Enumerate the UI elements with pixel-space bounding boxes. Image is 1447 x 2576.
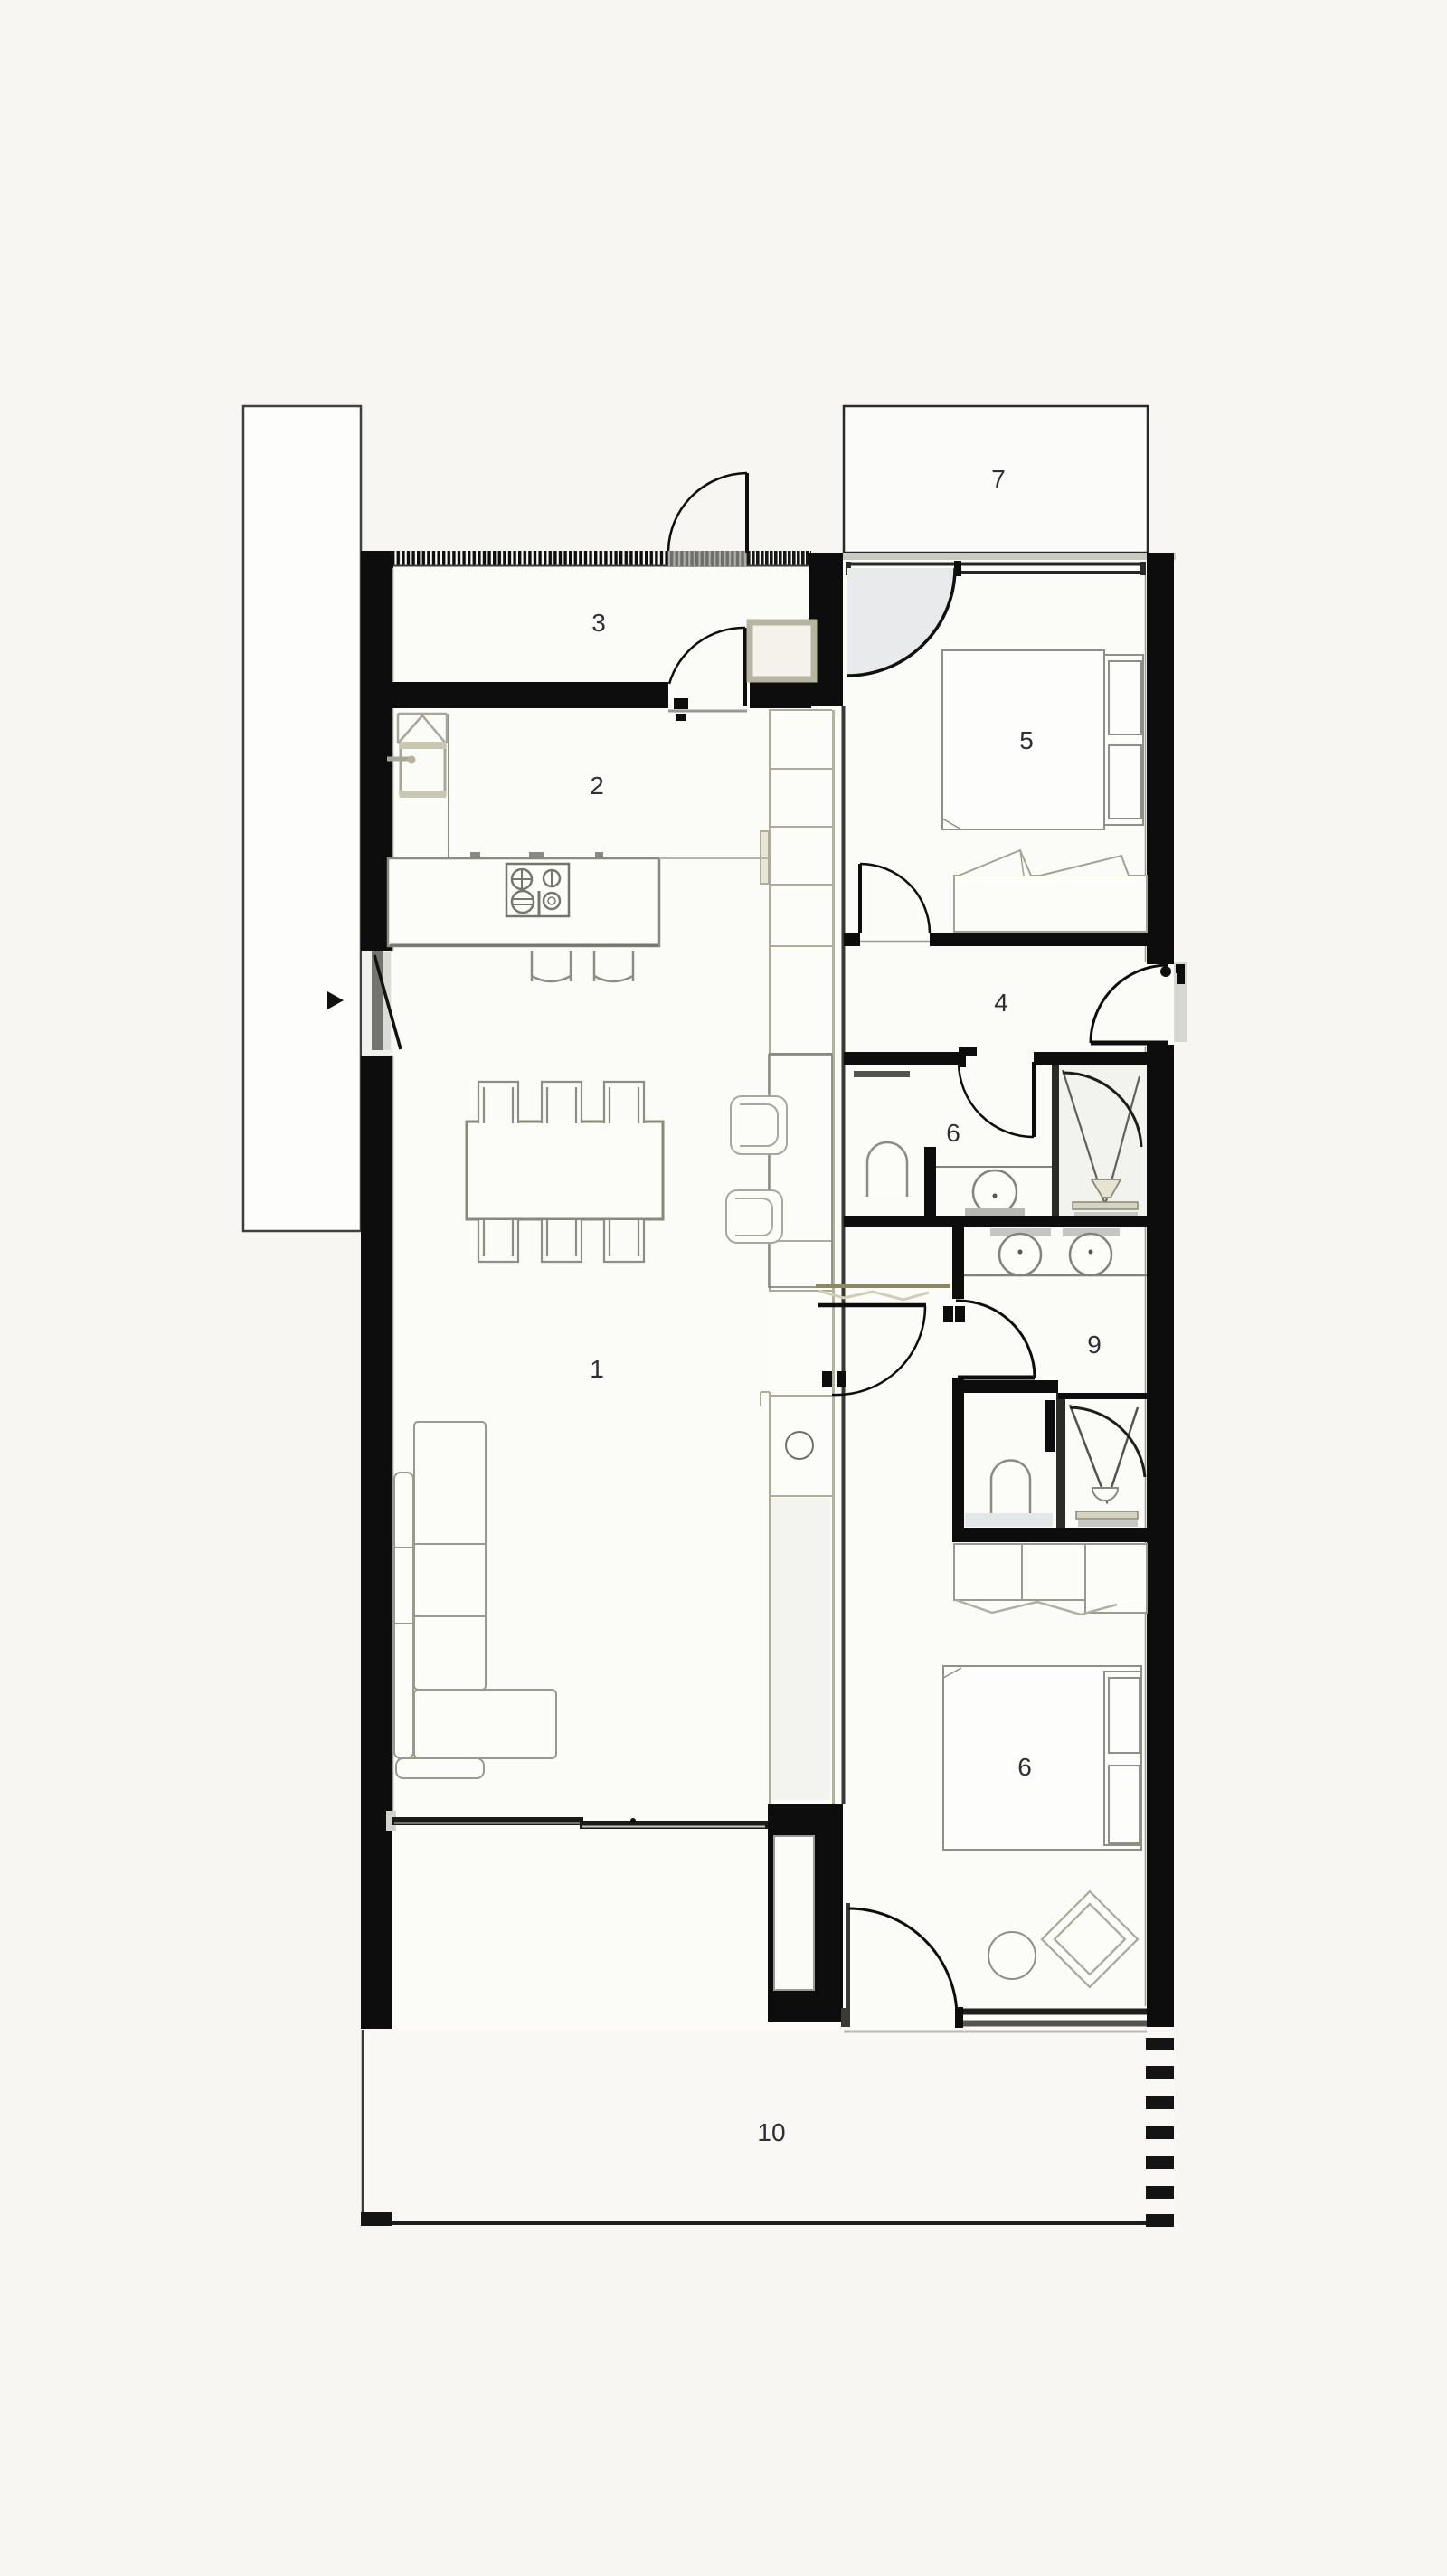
svg-text:9: 9 xyxy=(1087,1331,1102,1359)
svg-text:4: 4 xyxy=(994,989,1008,1017)
svg-text:6: 6 xyxy=(946,1119,960,1147)
svg-text:2: 2 xyxy=(590,772,604,800)
svg-text:10: 10 xyxy=(757,2118,785,2146)
svg-text:3: 3 xyxy=(591,609,606,637)
svg-text:7: 7 xyxy=(991,465,1006,493)
svg-text:1: 1 xyxy=(590,1355,604,1383)
svg-text:6: 6 xyxy=(1017,1753,1032,1781)
svg-text:5: 5 xyxy=(1019,726,1034,754)
